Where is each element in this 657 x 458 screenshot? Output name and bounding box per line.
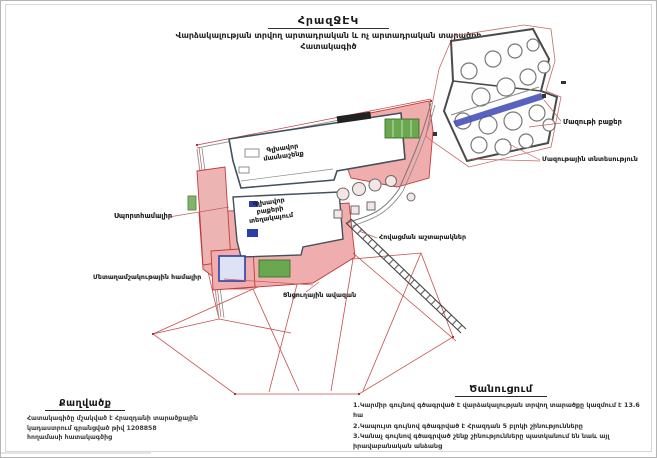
label-spray-pond: Ցնցուղային ավազան [283, 292, 356, 299]
label-mazut-facility: Մազութային տնտեսություն [542, 156, 638, 163]
extract-line-1: Հատակագիծը մշակված է Հրազդանի տարածքային [27, 414, 227, 424]
notice-block: Ծանուցում 1.Կարմիր գույնով գծագրված է վա… [353, 377, 649, 451]
label-mazut-tanks: Մազութի բաքեր [563, 118, 622, 126]
notice-item-2: 2.Կապույտ գույնով գծագրված է Հրազդան 5 բ… [353, 421, 641, 431]
label-cooling-towers: Հովացման աշտարակներ [379, 234, 466, 241]
extract-text: Հատակագիծը մշակված է Հրազդանի տարածքային… [27, 414, 227, 443]
blue-pool [219, 256, 245, 281]
notice-heading: Ծանուցում [455, 384, 546, 397]
label-metal-complex: Մետաղամշակութային համալիր [93, 274, 201, 281]
scanned-site-plan-page: ՀրազՋԷԿ Վարձակալության տրվող արտադրական … [0, 0, 657, 458]
extract-line-3: հողամասի հատակագծից [27, 433, 227, 443]
notice-item-3: 3.Կանաչ գույնով գծագրված շենք շինություն… [353, 431, 641, 452]
extract-heading: Քաղվածք [45, 398, 125, 411]
extract-line-2: կադաստրում գրանցված թիվ 1208858 [27, 424, 227, 434]
extract-block: Քաղվածք Հատակագիծը մշակված է Հրազդանի տա… [27, 391, 227, 443]
notice-items: 1.Կարմիր գույնով գծագրված է վարձակալությ… [353, 400, 649, 451]
label-sport-complex: Սպորտհամալիր [114, 212, 172, 220]
notice-item-1: 1.Կարմիր գույնով գծագրված է վարձակալությ… [353, 400, 641, 421]
tank-farm [426, 25, 566, 167]
green-pool [259, 260, 290, 277]
